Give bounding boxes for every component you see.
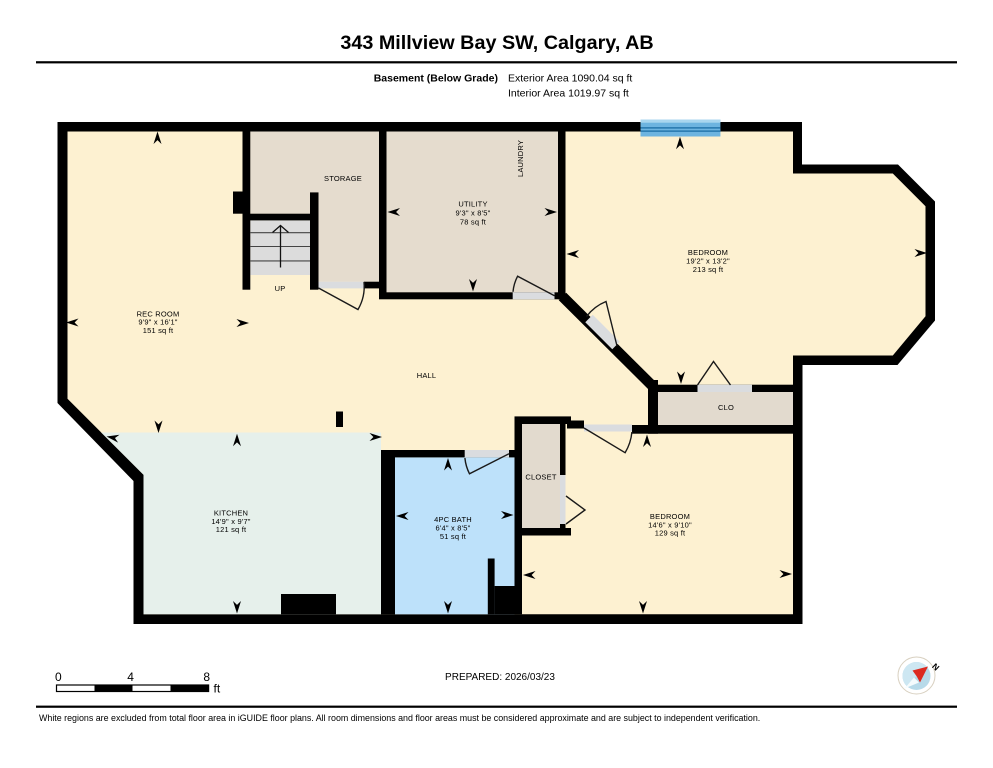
svg-text:51 sq ft: 51 sq ft: [440, 532, 467, 541]
svg-text:CLOSET: CLOSET: [525, 473, 556, 482]
svg-text:White regions are excluded fro: White regions are excluded from total fl…: [39, 713, 760, 723]
svg-text:LAUNDRY: LAUNDRY: [516, 140, 525, 177]
svg-text:Basement (Below Grade): Basement (Below Grade): [374, 73, 498, 85]
svg-text:HALL: HALL: [417, 371, 437, 380]
svg-text:UP: UP: [275, 284, 286, 293]
svg-text:ft: ft: [214, 682, 221, 696]
svg-text:PREPARED: 2026/03/23: PREPARED: 2026/03/23: [445, 672, 555, 683]
svg-text:8: 8: [203, 670, 210, 684]
svg-text:0: 0: [55, 670, 62, 684]
svg-text:CLO: CLO: [718, 403, 734, 412]
svg-text:151 sq ft: 151 sq ft: [143, 326, 174, 335]
svg-text:STORAGE: STORAGE: [324, 174, 362, 183]
svg-text:UTILITY: UTILITY: [458, 200, 487, 209]
svg-text:Interior Area 1019.97 sq ft: Interior Area 1019.97 sq ft: [508, 88, 629, 100]
svg-text:213 sq ft: 213 sq ft: [693, 265, 724, 274]
svg-text:343 Millview Bay SW, Calgary,: 343 Millview Bay SW, Calgary, AB: [340, 32, 653, 54]
svg-text:78 sq ft: 78 sq ft: [460, 217, 487, 226]
svg-text:4: 4: [127, 670, 134, 684]
svg-text:129 sq ft: 129 sq ft: [655, 529, 686, 538]
svg-text:121 sq ft: 121 sq ft: [216, 525, 247, 534]
svg-text:9'3" x 8'5": 9'3" x 8'5": [456, 209, 491, 218]
svg-text:Exterior Area 1090.04 sq ft: Exterior Area 1090.04 sq ft: [508, 73, 632, 85]
